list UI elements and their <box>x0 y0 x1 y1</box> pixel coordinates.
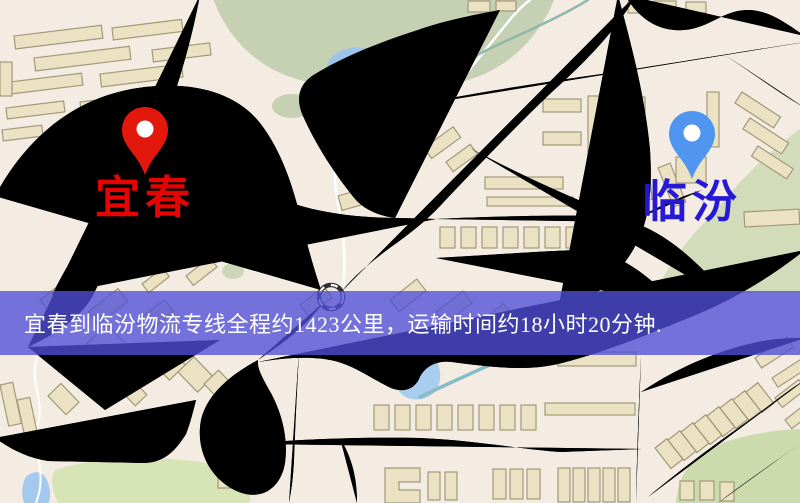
banner-text: 宜春到临汾物流专线全程约1423公里，运输时间约18小时20分钟. <box>0 307 662 339</box>
logistics-banner: 宜春到临汾物流专线全程约1423公里，运输时间约18小时20分钟. <box>0 291 800 355</box>
destination-label: 临汾 <box>642 179 742 224</box>
map-viewport: 宜春 临汾 宜春到临汾物流专线全程约1423公里，运输时间约18小时20分钟. <box>0 0 800 503</box>
destination-pin-icon[interactable] <box>667 108 717 182</box>
map-canvas[interactable] <box>0 0 800 503</box>
origin-pin-icon[interactable] <box>120 104 170 178</box>
origin-label: 宜春 <box>95 175 195 220</box>
